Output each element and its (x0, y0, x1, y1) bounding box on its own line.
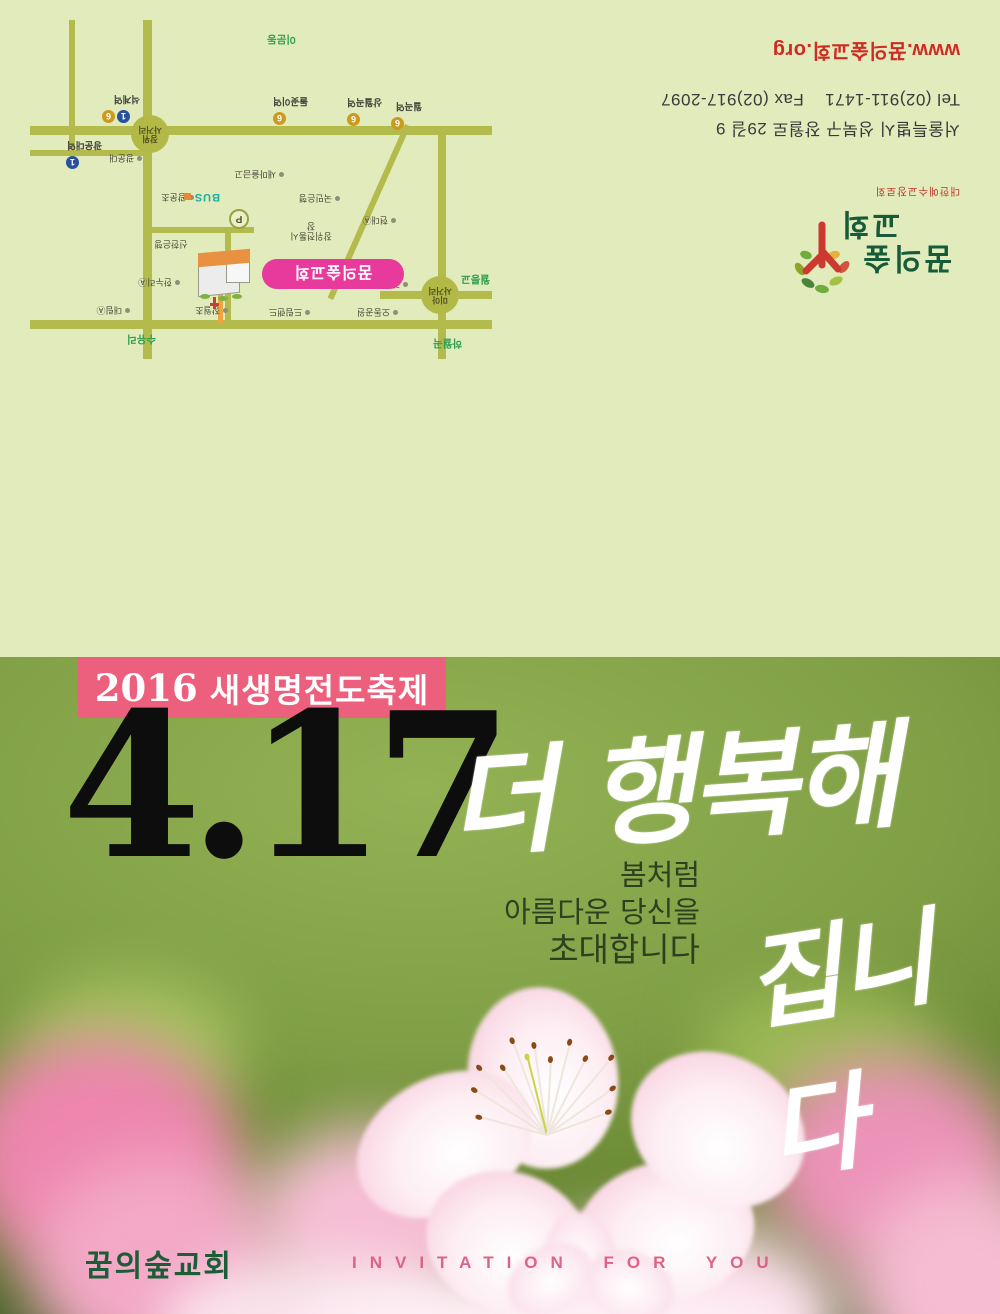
poi-shinhan-bank: 신한은행 (150, 239, 192, 249)
fax-number: (02)917-2097 (661, 90, 769, 109)
line1-icon-seokgye: 1 (117, 110, 130, 123)
location-map: 장위 사거리 미아 사거리 1 6 석계역 1 광운대역 6 돌곶이역 6 상월… (30, 20, 492, 359)
road-vertical-main (143, 20, 152, 359)
map-church-badge: 꿈의숲교회 (262, 259, 404, 289)
line6-icon-seokgye: 6 (102, 110, 115, 123)
station-kwangwoon: 광운대역 (67, 139, 102, 153)
poi-kwangwoon-univ: 광운대 (109, 152, 142, 165)
direction-wolleunggyo: 월릉교 (461, 272, 490, 287)
bus-stop-icon (184, 194, 191, 201)
sub-line-2: 아름다운 당신을 (498, 894, 700, 931)
road-vertical-right (69, 20, 75, 149)
parking-icon: P (229, 209, 249, 229)
poi-dreamland: 드림랜드 (269, 306, 310, 319)
logo-denomination: 대한예수교장로회 (875, 184, 960, 199)
line6-icon-wolgok: 6 (391, 117, 404, 130)
website-url: www.꿈의숲교회.org (772, 38, 960, 67)
church-name: 꿈의숲교회 (85, 1241, 233, 1285)
junction-jangwi: 장위 사거리 (131, 115, 169, 153)
church-building-icon (184, 249, 254, 309)
road-vertical-left (438, 127, 446, 359)
junction-mia: 미아 사거리 (421, 276, 459, 314)
address: 서울특별시 성북구 장월로 29길 9 (716, 118, 960, 143)
back-panel: 꿈의숲 교회 대한예수교장로회 서울특별시 성북구 장월로 29길 9 Tel … (0, 0, 1000, 657)
direction-suyuri: 수유리 (127, 332, 156, 347)
junction-jangwi-line1: 장위 (142, 134, 158, 143)
sub-message: 봄처럼 아름다운 당신을 초대합니다 (498, 857, 700, 968)
line6-icon-sangwolgok: 6 (347, 113, 360, 126)
poi-kookmin-bank: 국민은행 (299, 192, 340, 205)
direction-imundong: 이문동 (267, 32, 296, 47)
invitation-tagline: INVITATION FOR YOU (352, 1253, 782, 1273)
line1-icon-kwangwoon: 1 (66, 156, 79, 169)
sub-line-1: 봄처럼 (498, 857, 700, 894)
station-sangwolgok: 상월곡역 (347, 96, 382, 110)
church-logo: 꿈의숲 교회 대한예수교장로회 (782, 180, 962, 305)
tree-logo-icon (786, 221, 858, 299)
station-wolgok: 월곡역 (396, 100, 422, 114)
poi-daelim-apt: 대림Ⓐ (96, 304, 130, 317)
invitation-panel: 2016 새생명전도축제 4.17 더 행복해 집니다 봄처럼 아름다운 당신을… (0, 657, 1000, 1314)
poi-hannuri-apt: 한누리Ⓐ (138, 276, 180, 289)
tel-number: (02)911-1471 (825, 90, 932, 109)
road-top-horizontal (30, 320, 492, 329)
line6-icon-dolgoji: 6 (273, 112, 286, 125)
junction-jangwi-line2: 사거리 (138, 125, 161, 134)
sub-line-3: 초대합니다 (498, 931, 700, 968)
tel-label: Tel (937, 90, 960, 109)
poi-jangwi-market: 장위전통시장 (288, 221, 334, 241)
tel-fax-line: Tel (02)911-1471 Fax (02)917-2097 (661, 89, 960, 109)
poi-saemaul-geumgo: 새마을금고 (235, 168, 284, 181)
road-main-horizontal (30, 126, 492, 135)
invitation-card: 꿈의숲 교회 대한예수교장로회 서울특별시 성북구 장월로 29길 9 Tel … (0, 0, 1000, 1314)
bus-stop: BUS (184, 191, 220, 203)
station-seokgye: 석계역 (114, 93, 140, 107)
event-date: 4.17 (62, 687, 501, 887)
direction-hawolgok: 하월곡 (433, 336, 462, 351)
junction-mia-line2: 사거리 (428, 286, 451, 295)
bus-label: BUS (194, 191, 220, 203)
junction-mia-line1: 미아 (432, 295, 448, 304)
station-dolgoji: 돌곶이역 (273, 95, 308, 109)
poi-odong-park: 오동공원 (357, 306, 398, 319)
headline-calligraphy-1: 더 행복해 (443, 682, 901, 881)
poi-hyundai-apt: 현대Ⓐ (362, 214, 396, 227)
headline-calligraphy-2: 집니다 (733, 864, 1000, 1201)
fax-label: Fax (774, 90, 804, 109)
